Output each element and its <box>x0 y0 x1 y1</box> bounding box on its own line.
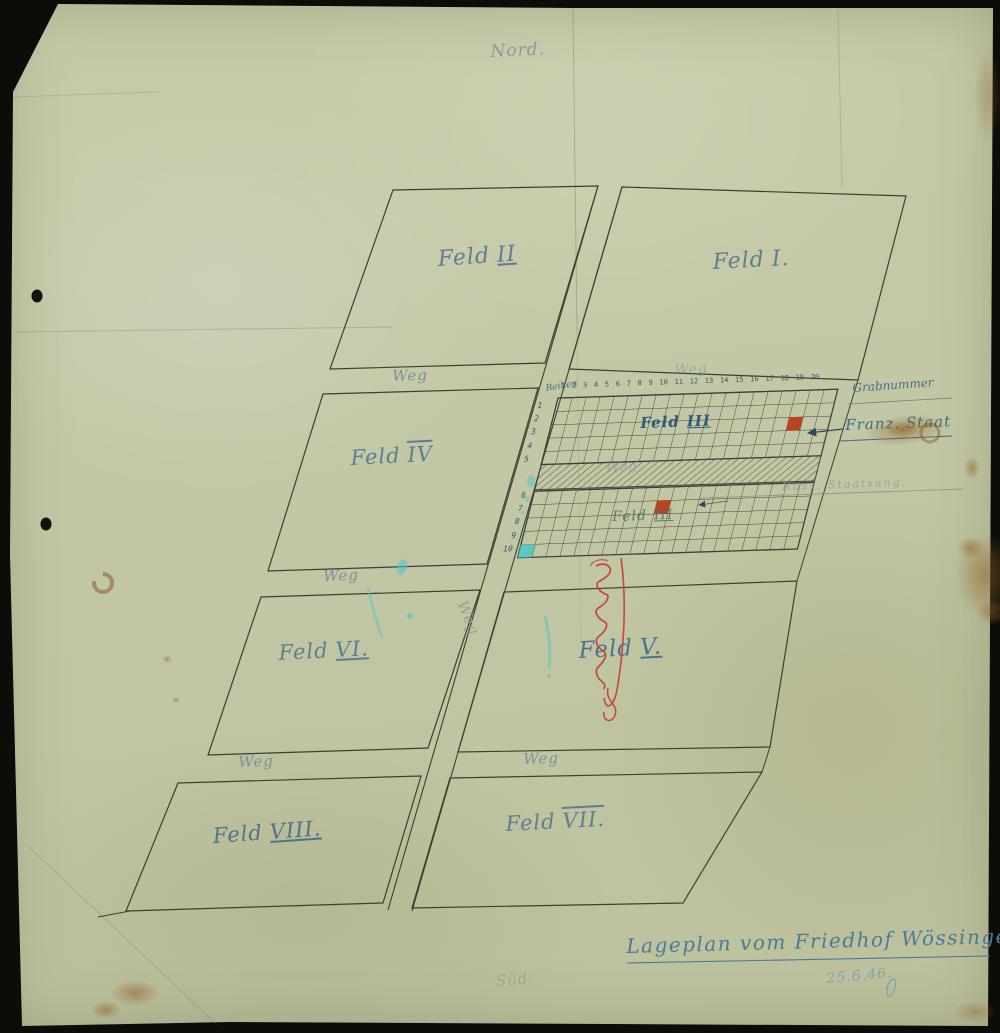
weg-label-lower-left: Weg <box>238 752 274 771</box>
feld-i-word: Feld <box>712 247 765 275</box>
feld-iv-word: Feld <box>350 443 401 470</box>
feld-iv-numeral: IV <box>407 442 434 467</box>
row-numbers-lower: 6 7 8 9 10 <box>501 489 527 556</box>
feld-iii-upper-numeral: III <box>687 412 712 431</box>
handwriting-labels: Nord. Süd. FeldII FeldI. FeldIV FeldIII … <box>0 0 1000 1033</box>
feld-v-numeral: V. <box>639 634 662 661</box>
feld-v-word: Feld <box>578 635 634 664</box>
feld-vi-label: FeldVI. <box>278 636 369 665</box>
feld-iii-lower-label: FeldIII <box>612 507 674 525</box>
plan-date: 25.6.46. <box>826 965 893 987</box>
feld-viii-numeral: VIII. <box>269 816 322 844</box>
feld-viii-label: FeldVIII. <box>212 816 322 848</box>
grave-annotation-russ: Russ. Staatsang. <box>782 476 907 493</box>
plan-title: Lageplan vom Friedhof Wössingen. <box>626 923 1000 958</box>
feld-iii-upper-word: Feld <box>640 413 680 432</box>
feld-iii-lower-numeral: III <box>654 507 674 524</box>
feld-ii-word: Feld <box>437 243 491 272</box>
feld-i-numeral: I. <box>771 246 790 272</box>
weg-label-main-road: Weg <box>453 598 483 638</box>
feld-vi-numeral: VI. <box>335 636 369 662</box>
compass-south-label: Süd. <box>495 969 535 990</box>
grave-annotation-franz: Franz. Staat <box>845 412 951 434</box>
feld-vii-numeral: VII. <box>562 807 606 833</box>
feld-v-label: FeldV. <box>578 634 663 664</box>
feld-vii-word: Feld <box>505 809 556 836</box>
weg-label-middle-left: Weg <box>323 566 359 585</box>
grabnummer-label: Grabnummer <box>852 375 934 395</box>
weg-label-grid-strip: Weg <box>606 459 638 476</box>
compass-north-label: Nord. <box>490 39 546 62</box>
weg-label-lower-right: Weg <box>523 749 559 768</box>
feld-i-label: FeldI. <box>712 246 790 275</box>
weg-label-upper-right: Weg <box>674 361 708 378</box>
feld-vii-label: FeldVII. <box>505 807 606 836</box>
feld-iii-upper-label: FeldIII <box>640 412 711 432</box>
feld-iii-lower-word: Feld <box>612 508 647 525</box>
feld-iv-label: FeldIV <box>350 442 434 470</box>
feld-vi-word: Feld <box>278 638 329 665</box>
weg-label-upper-left: Weg <box>392 366 428 385</box>
feld-ii-label: FeldII <box>437 242 517 272</box>
row-numbers-upper: 1 2 3 4 5 <box>522 399 543 466</box>
feld-viii-word: Feld <box>212 821 264 848</box>
scanned-document: Nord. Süd. FeldII FeldI. FeldIV FeldIII … <box>0 0 1000 1033</box>
feld-ii-numeral: II <box>496 242 517 268</box>
